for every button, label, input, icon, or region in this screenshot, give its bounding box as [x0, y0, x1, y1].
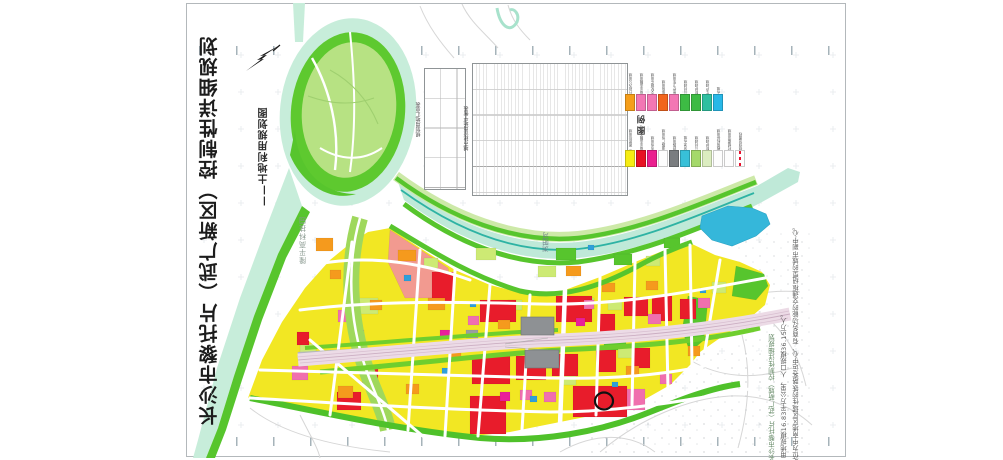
- legend-color-swatch: [647, 94, 657, 111]
- legend-color-swatch: [669, 94, 679, 111]
- legend-item-label: 河流水域: [681, 116, 690, 150]
- river-label: 浏阳河: [542, 229, 551, 255]
- legend-item: 河流水域: [681, 116, 689, 167]
- landuse-balance-table: [472, 63, 628, 196]
- legend-color-swatch: [713, 150, 723, 167]
- legend-item: 行政办公用地: [626, 60, 634, 111]
- legend-item: 生产绿地: [703, 60, 711, 111]
- annotation-positioning: 定位为中南地区区域性的铁路客运中心、有商务功能的交通枢纽型的城市副中心。: [792, 231, 801, 457]
- railway-station-block: [521, 317, 554, 335]
- legend-color-swatch: [713, 94, 723, 111]
- legend-color-swatch: [724, 150, 734, 167]
- legend-color-swatch: [702, 94, 712, 111]
- balance-table-title: 城市建设用地平衡表: [462, 104, 470, 154]
- page-title: 长沙市黎托片（武广新区）控制性详细规划: [196, 56, 222, 404]
- legend-item: 防护绿地: [692, 60, 700, 111]
- legend-color-swatch: [680, 94, 690, 111]
- summary-table-title: 规划用地汇总表: [414, 104, 422, 136]
- legend-item-label: 商业金融用地: [637, 60, 646, 94]
- annotation-scale-population: 用地规模16.83平方公里，人口规模36.15万人。: [780, 311, 789, 457]
- legend-item: 道路广场用地: [659, 116, 667, 167]
- legend-item-label: 商业金融业用地: [637, 116, 646, 150]
- legend-item: 文化娱乐用地: [648, 60, 656, 111]
- legend-item-label: 行政办公用地: [626, 60, 635, 94]
- legend-item-label: 文化娱乐用地: [648, 60, 657, 94]
- legend-item-label: 二类居住用地: [626, 116, 635, 150]
- page-subtitle: ——土地利用规划图: [257, 98, 272, 216]
- legend-item-label: 水域: [714, 60, 723, 94]
- north-arrow-icon: [240, 42, 284, 78]
- legend-item: 铁路用地: [670, 116, 678, 167]
- legend-item-label: 体育用地: [659, 60, 668, 94]
- legend-item: 村镇建设用地: [725, 116, 733, 167]
- legend-color-swatch: [625, 94, 635, 111]
- annotation-project-title: ■长沙市黎托片（武广新城）控制性详细规划: [768, 348, 777, 456]
- legend-color-swatch: [680, 150, 690, 167]
- legend-item-label: 公共绿地: [692, 116, 701, 150]
- legend-item: 规划范围线: [736, 116, 744, 167]
- legend-item: 市场用地: [648, 116, 656, 167]
- legend-color-swatch: [658, 150, 668, 167]
- legend-item-label: 市场用地: [648, 116, 657, 150]
- legend-color-swatch: [702, 150, 712, 167]
- legend-color-swatch: [636, 150, 646, 167]
- legend-row-2: 二类居住用地商业金融业用地市场用地道路广场用地铁路用地河流水域公共绿地防护绿地教…: [626, 116, 744, 167]
- legend-item-label: 教育科研用地: [714, 116, 723, 150]
- legend-item: 医疗卫生用地: [670, 60, 678, 111]
- legend-color-swatch: [625, 150, 635, 167]
- legend-item: 公共绿地: [692, 116, 700, 167]
- landuse-summary-table: [424, 68, 466, 190]
- legend-item-label: 村镇建设用地: [725, 116, 734, 150]
- legend-item-label: 生产绿地: [703, 60, 712, 94]
- legend-color-swatch: [658, 94, 668, 111]
- legend-item: 商业金融业用地: [637, 116, 645, 167]
- legend-item: 防护绿地: [703, 116, 711, 167]
- park-label: 隆平高科技园: [297, 209, 308, 271]
- legend-item: 教育科研用地: [714, 116, 722, 167]
- legend-item-label: 公共绿地: [681, 60, 690, 94]
- legend-item-label: 防护绿地: [692, 60, 701, 94]
- legend-item-label: 医疗卫生用地: [670, 60, 679, 94]
- legend-color-swatch: [647, 150, 657, 167]
- legend-color-swatch: [691, 94, 701, 111]
- legend-color-swatch: [636, 94, 646, 111]
- legend-row-1: 行政办公用地商业金融用地文化娱乐用地体育用地医疗卫生用地公共绿地防护绿地生产绿地…: [626, 60, 722, 111]
- legend-item-label: 铁路用地: [670, 116, 679, 150]
- legend-item: 体育用地: [659, 60, 667, 111]
- legend-color-swatch: [691, 150, 701, 167]
- legend-item: 商业金融用地: [637, 60, 645, 111]
- legend-item: 水域: [714, 60, 722, 111]
- legend-color-swatch: [735, 150, 745, 167]
- planning-drawing-page: 长沙市黎托片（武广新区）控制性详细规划 ——土地利用规划图 规划用地汇总表 城市…: [0, 0, 1003, 460]
- legend-item-label: 防护绿地: [703, 116, 712, 150]
- legend-item-label: 道路广场用地: [659, 116, 668, 150]
- legend-item: 二类居住用地: [626, 116, 634, 167]
- legend-item-label: 规划范围线: [736, 116, 745, 150]
- railway-station-block: [525, 350, 559, 368]
- legend-color-swatch: [669, 150, 679, 167]
- legend-item: 公共绿地: [681, 60, 689, 111]
